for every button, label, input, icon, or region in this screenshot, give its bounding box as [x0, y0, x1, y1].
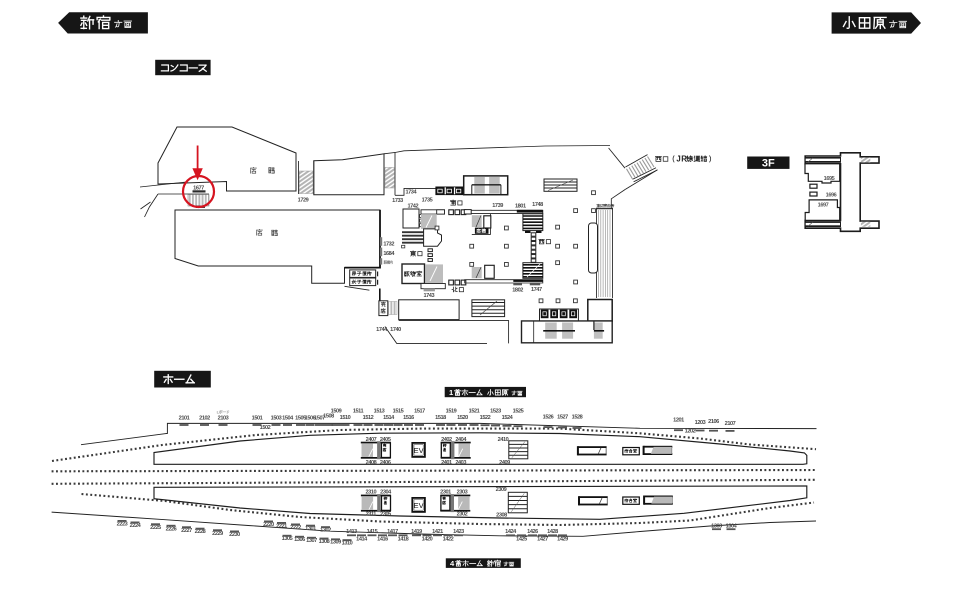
svg-text:2406: 2406 — [380, 460, 391, 466]
svg-text:1429: 1429 — [557, 536, 568, 542]
svg-text:1742: 1742 — [407, 203, 418, 209]
svg-text:1305: 1305 — [282, 536, 293, 542]
svg-text:2101: 2101 — [179, 416, 190, 422]
svg-text:1528: 1528 — [572, 415, 583, 421]
svg-text:1417: 1417 — [387, 529, 398, 535]
svg-text:1413: 1413 — [346, 529, 357, 535]
svg-text:1302: 1302 — [320, 528, 331, 534]
svg-text:2305: 2305 — [380, 512, 391, 518]
svg-text:1734: 1734 — [405, 189, 417, 195]
svg-text:Lボード: Lボード — [217, 409, 230, 415]
svg-text:1422: 1422 — [443, 536, 454, 542]
svg-text:1695: 1695 — [824, 176, 835, 182]
svg-text:1419: 1419 — [411, 529, 422, 535]
svg-text:1684: 1684 — [383, 251, 395, 257]
svg-text:1420: 1420 — [422, 536, 433, 542]
svg-text:1514: 1514 — [383, 415, 395, 421]
svg-text:1522: 1522 — [480, 415, 491, 421]
svg-text:2302: 2302 — [457, 512, 468, 518]
svg-text:2226: 2226 — [166, 526, 177, 532]
svg-text:2229: 2229 — [212, 531, 223, 537]
svg-text:1802: 1802 — [512, 287, 523, 293]
svg-text:2106: 2106 — [708, 419, 719, 425]
svg-text:2225: 2225 — [150, 525, 161, 531]
svg-text:1427: 1427 — [537, 536, 548, 542]
svg-text:1502: 1502 — [260, 425, 271, 431]
svg-text:2301: 2301 — [440, 490, 451, 496]
svg-text:2222: 2222 — [290, 525, 301, 531]
svg-text:1521: 1521 — [469, 408, 480, 414]
svg-text:1729: 1729 — [298, 198, 309, 204]
svg-text:1524: 1524 — [502, 415, 514, 421]
svg-text:2228: 2228 — [195, 529, 206, 535]
svg-text:2102: 2102 — [199, 416, 210, 422]
svg-text:1504: 1504 — [282, 416, 294, 422]
svg-text:1201: 1201 — [673, 417, 684, 423]
svg-text:2308: 2308 — [496, 513, 507, 519]
svg-text:1309: 1309 — [330, 540, 341, 546]
svg-text:1515: 1515 — [393, 408, 404, 414]
svg-text:1520: 1520 — [457, 415, 468, 421]
svg-text:1415: 1415 — [367, 529, 378, 535]
svg-text:1414: 1414 — [356, 536, 368, 542]
svg-text:1421: 1421 — [432, 529, 443, 535]
svg-text:2410: 2410 — [498, 437, 509, 443]
svg-text:1518: 1518 — [435, 415, 446, 421]
svg-text:2103: 2103 — [218, 416, 229, 422]
svg-text:1748: 1748 — [532, 202, 543, 208]
svg-text:駅構内: 駅構内 — [384, 260, 394, 265]
svg-text:1735: 1735 — [422, 198, 433, 204]
svg-text:1423: 1423 — [453, 529, 464, 535]
svg-text:1306: 1306 — [294, 537, 305, 543]
svg-text:2221: 2221 — [276, 523, 287, 529]
svg-text:1418: 1418 — [398, 536, 409, 542]
svg-text:1747: 1747 — [531, 287, 542, 293]
svg-text:2309: 2309 — [496, 487, 507, 493]
svg-text:2311: 2311 — [366, 512, 377, 518]
svg-text:1307: 1307 — [306, 538, 317, 544]
svg-text:2402: 2402 — [441, 437, 452, 443]
svg-text:1743: 1743 — [423, 293, 434, 299]
svg-text:3F: 3F — [762, 157, 775, 169]
svg-text:2223: 2223 — [117, 522, 128, 528]
svg-text:1526: 1526 — [543, 415, 554, 421]
svg-text:1426: 1426 — [527, 529, 538, 535]
svg-text:1501: 1501 — [252, 416, 263, 422]
svg-text:1503: 1503 — [271, 416, 282, 422]
svg-text:1697: 1697 — [818, 203, 829, 209]
svg-text:1523: 1523 — [490, 408, 501, 414]
svg-text:2220: 2220 — [263, 522, 274, 528]
svg-text:1202: 1202 — [685, 429, 696, 435]
svg-text:1517: 1517 — [414, 408, 425, 414]
svg-text:1203: 1203 — [695, 420, 706, 426]
svg-text:2407: 2407 — [366, 437, 377, 443]
svg-text:2224: 2224 — [130, 523, 142, 529]
svg-text:EV: EV — [414, 501, 425, 510]
svg-text:1509: 1509 — [331, 408, 342, 414]
svg-text:2227: 2227 — [181, 528, 192, 534]
svg-text:1428: 1428 — [547, 529, 558, 535]
svg-text:2409: 2409 — [499, 460, 510, 466]
svg-text:2303: 2303 — [457, 490, 468, 496]
svg-text:1510: 1510 — [340, 415, 351, 421]
svg-text:1416: 1416 — [377, 536, 388, 542]
svg-text:2304: 2304 — [380, 490, 392, 496]
svg-text:1744: 1744 — [376, 327, 388, 333]
svg-text:1696: 1696 — [826, 193, 837, 199]
svg-text:1801: 1801 — [515, 204, 526, 210]
svg-text:1424: 1424 — [505, 529, 517, 535]
svg-text:J: J — [676, 154, 680, 163]
svg-text:1739: 1739 — [492, 203, 503, 209]
svg-text:1308: 1308 — [319, 539, 330, 545]
svg-text:2405: 2405 — [380, 437, 391, 443]
svg-text:1508: 1508 — [323, 414, 334, 420]
svg-text:1519: 1519 — [446, 408, 457, 414]
svg-text:1425: 1425 — [516, 536, 527, 542]
svg-text:1511: 1511 — [353, 408, 364, 414]
svg-text:1310: 1310 — [342, 540, 353, 546]
svg-text:1301: 1301 — [305, 526, 316, 532]
svg-text:1733: 1733 — [392, 198, 403, 204]
svg-text:2408: 2408 — [366, 460, 377, 466]
svg-text:1512: 1512 — [363, 415, 374, 421]
svg-text:2310: 2310 — [365, 490, 376, 496]
svg-text:2230: 2230 — [229, 532, 240, 538]
svg-text:2403: 2403 — [455, 460, 466, 466]
svg-text:1525: 1525 — [513, 408, 524, 414]
svg-text:2404: 2404 — [455, 437, 467, 443]
svg-text:1527: 1527 — [557, 415, 568, 421]
svg-text:EV: EV — [414, 446, 425, 455]
svg-text:1513: 1513 — [374, 408, 385, 414]
svg-text:1732: 1732 — [383, 241, 394, 247]
svg-text:1740: 1740 — [390, 327, 401, 333]
svg-text:1516: 1516 — [403, 415, 414, 421]
svg-text:2401: 2401 — [441, 460, 452, 466]
svg-text:2107: 2107 — [725, 421, 736, 427]
